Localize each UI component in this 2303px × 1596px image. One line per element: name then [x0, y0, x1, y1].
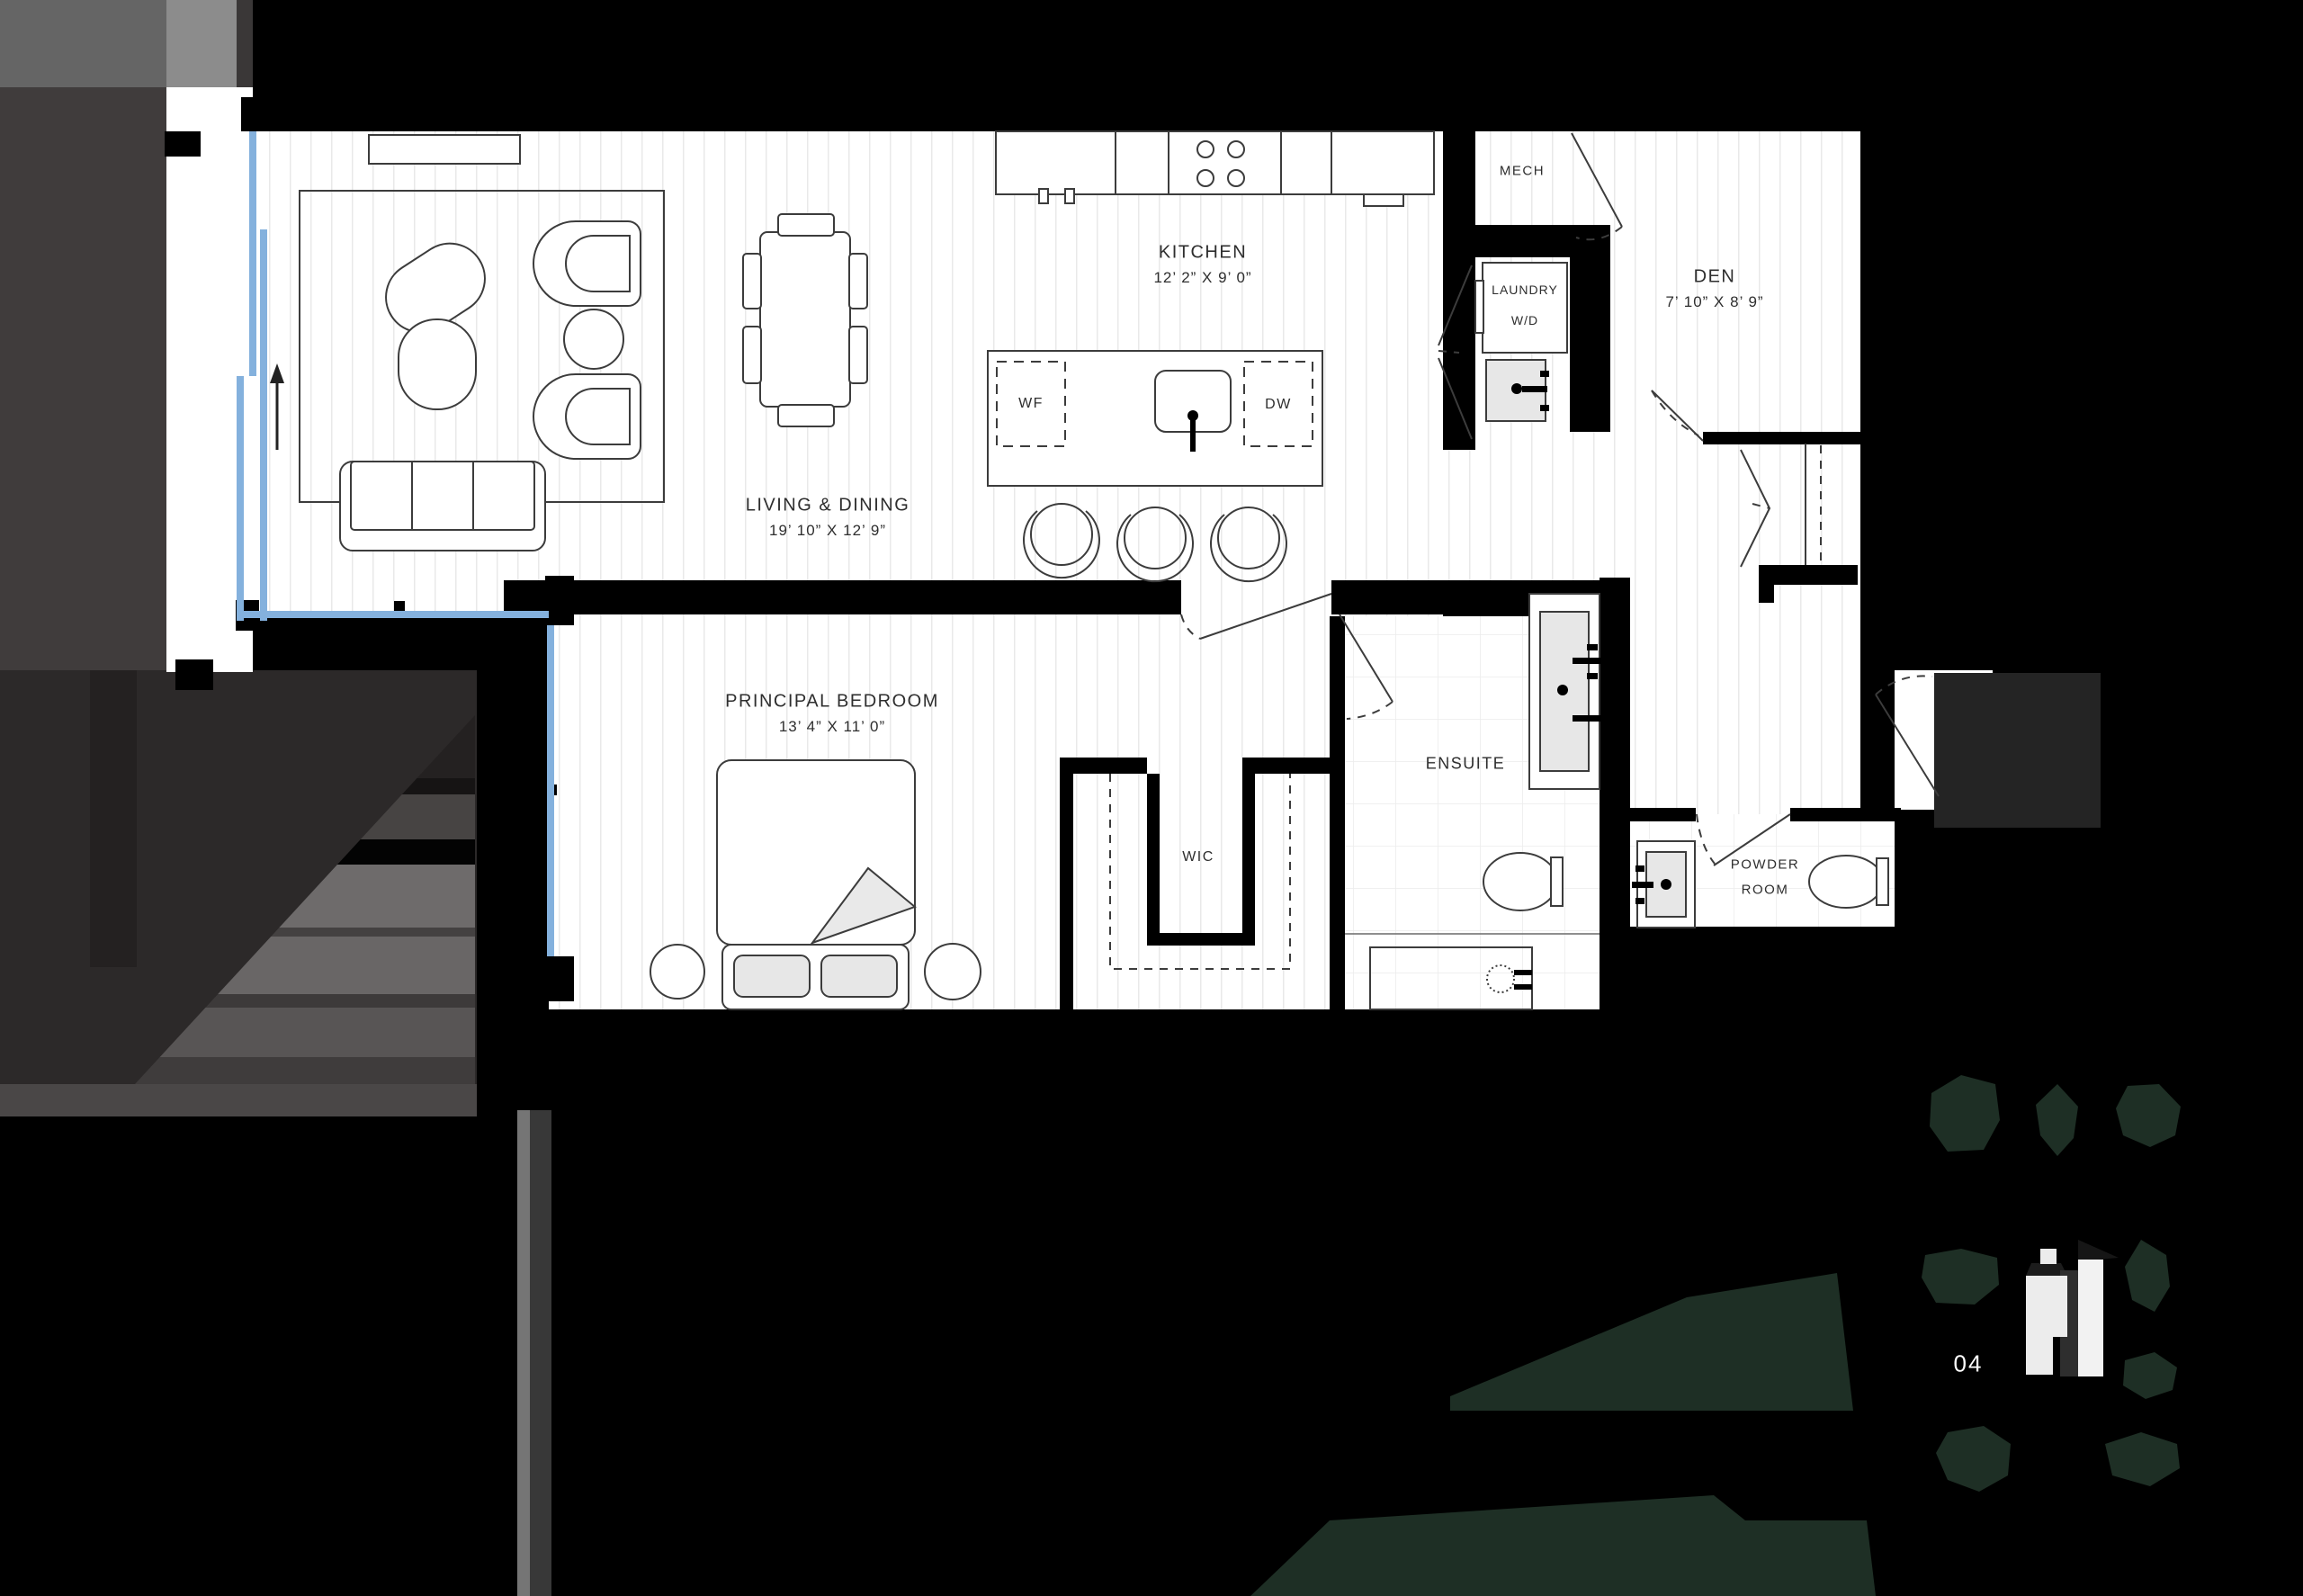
bedroom-label: PRINCIPAL BEDROOM — [725, 692, 939, 713]
wine-fridge-label: WF — [1018, 396, 1044, 412]
tree-icon — [1930, 1075, 2000, 1152]
tree-icon — [2105, 1432, 2180, 1486]
dining-chair — [743, 254, 761, 309]
side-table — [564, 309, 623, 369]
bed — [717, 760, 915, 1009]
laundry-sink-icon — [1486, 360, 1549, 421]
tree-icon — [1922, 1249, 1999, 1305]
exterior-corridor — [1934, 673, 2101, 828]
tree-icon — [2036, 1084, 2078, 1156]
unit-number: 04 — [1954, 1350, 1984, 1378]
console-table — [369, 135, 520, 164]
ensuite-label: ENSUITE — [1426, 755, 1506, 774]
nightstand — [650, 945, 704, 999]
faucet-icon — [1573, 715, 1603, 722]
green-area — [1450, 1273, 1853, 1411]
building-footprint — [2026, 1240, 2119, 1376]
living-dining-label: LIVING & DINING — [746, 496, 910, 516]
dining-table — [743, 214, 867, 426]
dishwasher-label: DW — [1265, 397, 1292, 413]
ensuite-vanity — [1529, 594, 1603, 789]
dining-chair — [743, 327, 761, 383]
tree-icon — [2125, 1240, 2170, 1312]
ensuite-toilet-icon — [1483, 853, 1563, 910]
nightstand — [925, 944, 981, 1000]
den-dims: 7’ 10” X 8’ 9” — [1665, 293, 1763, 311]
laundry-unit — [1475, 263, 1567, 353]
powder-toilet-icon — [1809, 856, 1888, 908]
dining-chair — [849, 327, 867, 383]
dining-chair — [778, 214, 834, 236]
dining-chair — [849, 254, 867, 309]
kitchen-label: KITCHEN — [1159, 243, 1247, 264]
powder-room-label: ROOM — [1742, 883, 1789, 898]
bedroom-dims: 13’ 4” X 11’ 0” — [779, 718, 885, 736]
mech-label: MECH — [1500, 164, 1545, 179]
floorplan-page: KITCHEN 12’ 2” X 9’ 0” LIVING & DINING 1… — [0, 0, 2303, 1596]
sofa — [340, 462, 545, 551]
fridge-handle-icon — [1039, 189, 1048, 203]
den-label: DEN — [1694, 267, 1736, 288]
green-area — [1250, 1495, 1876, 1596]
fridge-handle-icon — [1065, 189, 1074, 203]
tree-icon — [1936, 1426, 2011, 1492]
hall-floor — [1443, 432, 1860, 580]
tree-icon — [2116, 1084, 2181, 1147]
powder-label: POWDER — [1731, 857, 1800, 873]
laundry-wd-label: W/D — [1511, 313, 1538, 327]
kitchen-dims: 12’ 2” X 9’ 0” — [1153, 269, 1251, 287]
kitchen-sink-icon — [1364, 194, 1403, 206]
foyer-floor — [1630, 580, 1860, 814]
pillow — [734, 955, 810, 997]
site-plan — [1250, 1075, 2181, 1596]
pillow — [821, 955, 897, 997]
faucet-icon — [1632, 882, 1653, 888]
faucet-icon — [1573, 658, 1603, 664]
dining-chair — [778, 405, 834, 426]
powder-vanity — [1632, 841, 1695, 928]
armchair — [533, 221, 641, 306]
living-dining-dims: 19’ 10” X 12’ 9” — [769, 522, 886, 540]
armchair — [533, 374, 641, 459]
kitchen-counter — [996, 131, 1434, 206]
laundry-label: LAUNDRY — [1492, 282, 1558, 297]
tree-icon — [2123, 1352, 2177, 1399]
wic-label: WIC — [1182, 849, 1214, 865]
